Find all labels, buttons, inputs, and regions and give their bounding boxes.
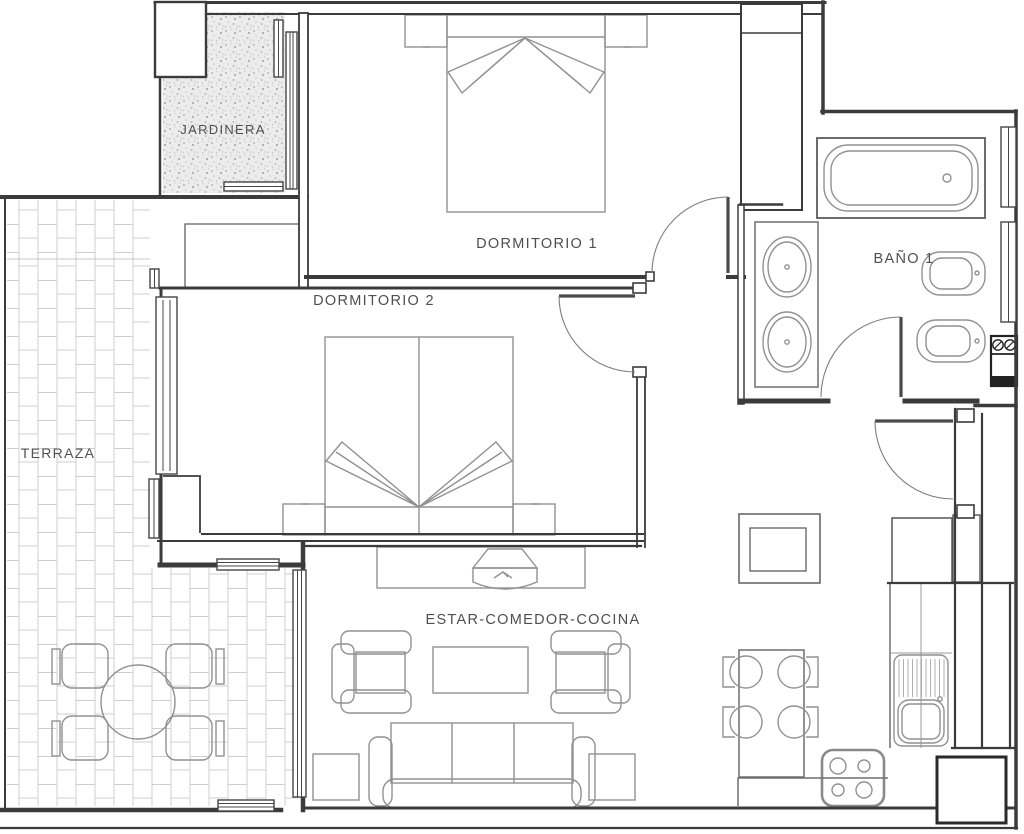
double-bed <box>447 15 605 212</box>
door-dormitorio1 <box>652 197 728 273</box>
window-strip <box>217 559 279 570</box>
tv <box>473 549 537 589</box>
double-bed <box>325 337 513 535</box>
floor-plan-page: JARDINERA DORMITORIO 1 DORMITORIO 2 TERR… <box>0 0 1024 834</box>
window-strip <box>149 479 159 538</box>
nightstand <box>605 15 647 47</box>
dormitorio2-furniture <box>185 224 555 535</box>
kitchen-island <box>739 514 820 583</box>
nightstand <box>283 504 325 535</box>
door-bathroom <box>821 317 901 397</box>
room-label-estar-comedor-cocina: ESTAR-COMEDOR-COCINA <box>425 612 640 628</box>
room-label-dormitorio-1: DORMITORIO 1 <box>476 236 598 252</box>
washing-machine <box>991 336 1017 386</box>
tall-cabinet <box>953 515 980 582</box>
planter-box <box>155 2 206 77</box>
room-label-dormitorio-2: DORMITORIO 2 <box>313 293 435 309</box>
room-label-terraza: TERRAZA <box>21 445 95 461</box>
armchair <box>551 631 630 713</box>
window-strip <box>156 297 177 474</box>
coffee-table <box>433 647 528 693</box>
sliding-door-window <box>293 570 306 797</box>
sofa <box>369 723 595 808</box>
armchair <box>332 631 411 713</box>
floor-plan-drawing: JARDINERA DORMITORIO 1 DORMITORIO 2 TERR… <box>0 0 1024 834</box>
dormitorio1-furniture <box>405 15 647 212</box>
nightstand <box>513 504 555 535</box>
window-strip <box>1001 127 1016 207</box>
window-strip <box>1001 222 1016 322</box>
door-dormitorio2 <box>559 296 635 372</box>
side-table <box>589 754 635 800</box>
wardrobe <box>185 224 300 288</box>
living-room-furniture <box>313 547 635 808</box>
nightstand <box>405 15 447 47</box>
window-strip <box>150 269 159 288</box>
window-strip <box>286 32 297 189</box>
shaft <box>741 4 802 210</box>
door-entrance <box>875 421 953 499</box>
window-strip <box>224 182 283 191</box>
fridge <box>937 757 1006 823</box>
vanity-two-sinks <box>755 222 818 387</box>
doors <box>559 197 953 499</box>
window-strip <box>218 800 274 811</box>
bathtub <box>817 138 985 218</box>
window-strip <box>274 20 283 77</box>
room-label-jardinera: JARDINERA <box>180 122 265 137</box>
tall-cabinet <box>892 518 952 583</box>
room-label-bano-1: BAÑO 1 <box>874 250 935 267</box>
dining-table <box>739 650 804 777</box>
bidet <box>917 320 985 362</box>
side-table <box>313 754 359 800</box>
